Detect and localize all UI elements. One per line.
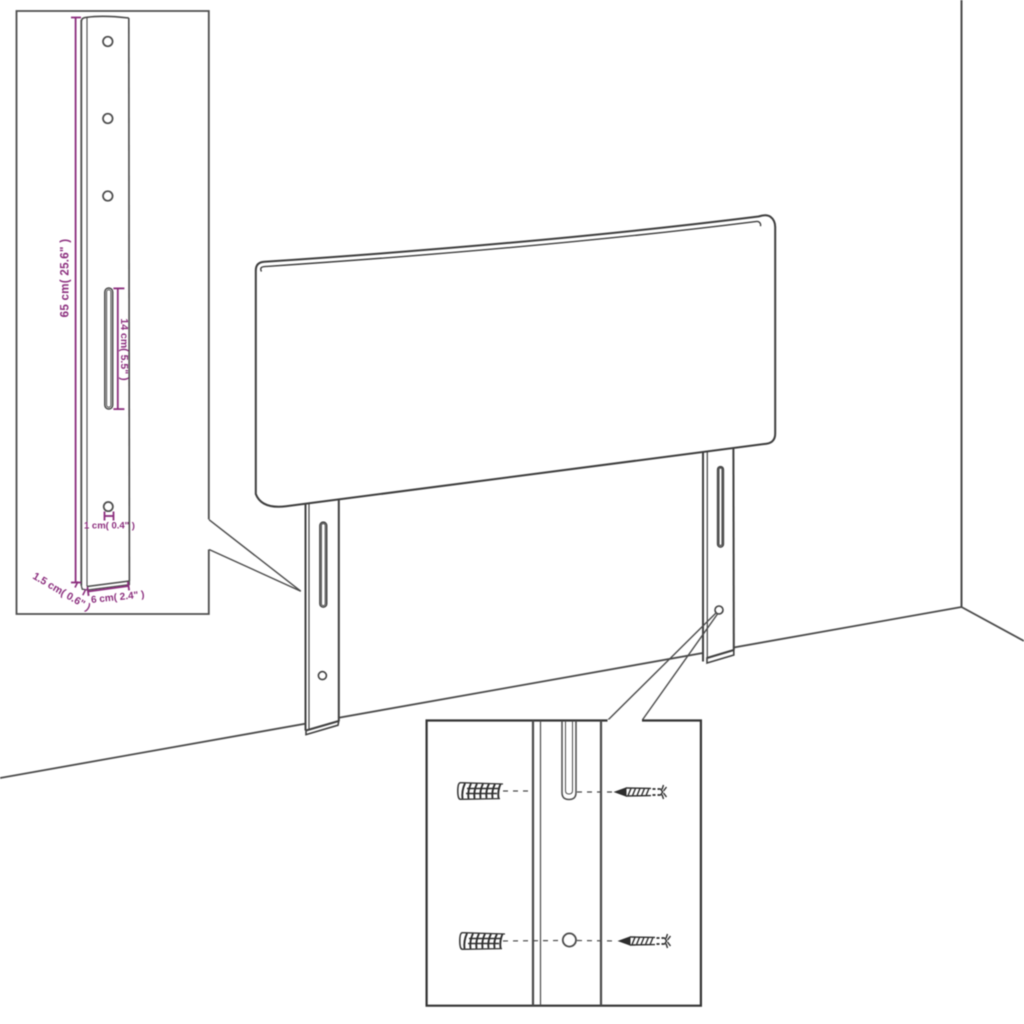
svg-text:14 cm( 5.5" ): 14 cm( 5.5" ) (118, 318, 130, 380)
svg-text:1 cm( 0.4" ): 1 cm( 0.4" ) (84, 521, 135, 532)
svg-text:65 cm( 25.6" ): 65 cm( 25.6" ) (60, 239, 72, 318)
